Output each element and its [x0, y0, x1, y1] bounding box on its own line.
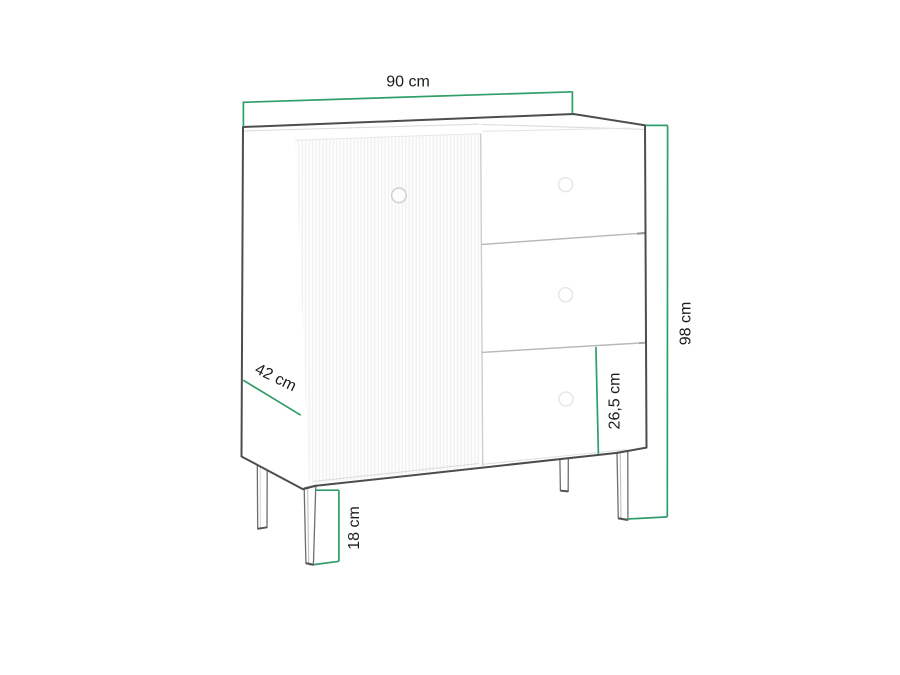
svg-text:18 cm: 18 cm [346, 506, 363, 550]
svg-text:26,5 cm: 26,5 cm [607, 373, 624, 430]
svg-text:98 cm: 98 cm [678, 302, 695, 346]
svg-text:90 cm: 90 cm [386, 74, 430, 91]
